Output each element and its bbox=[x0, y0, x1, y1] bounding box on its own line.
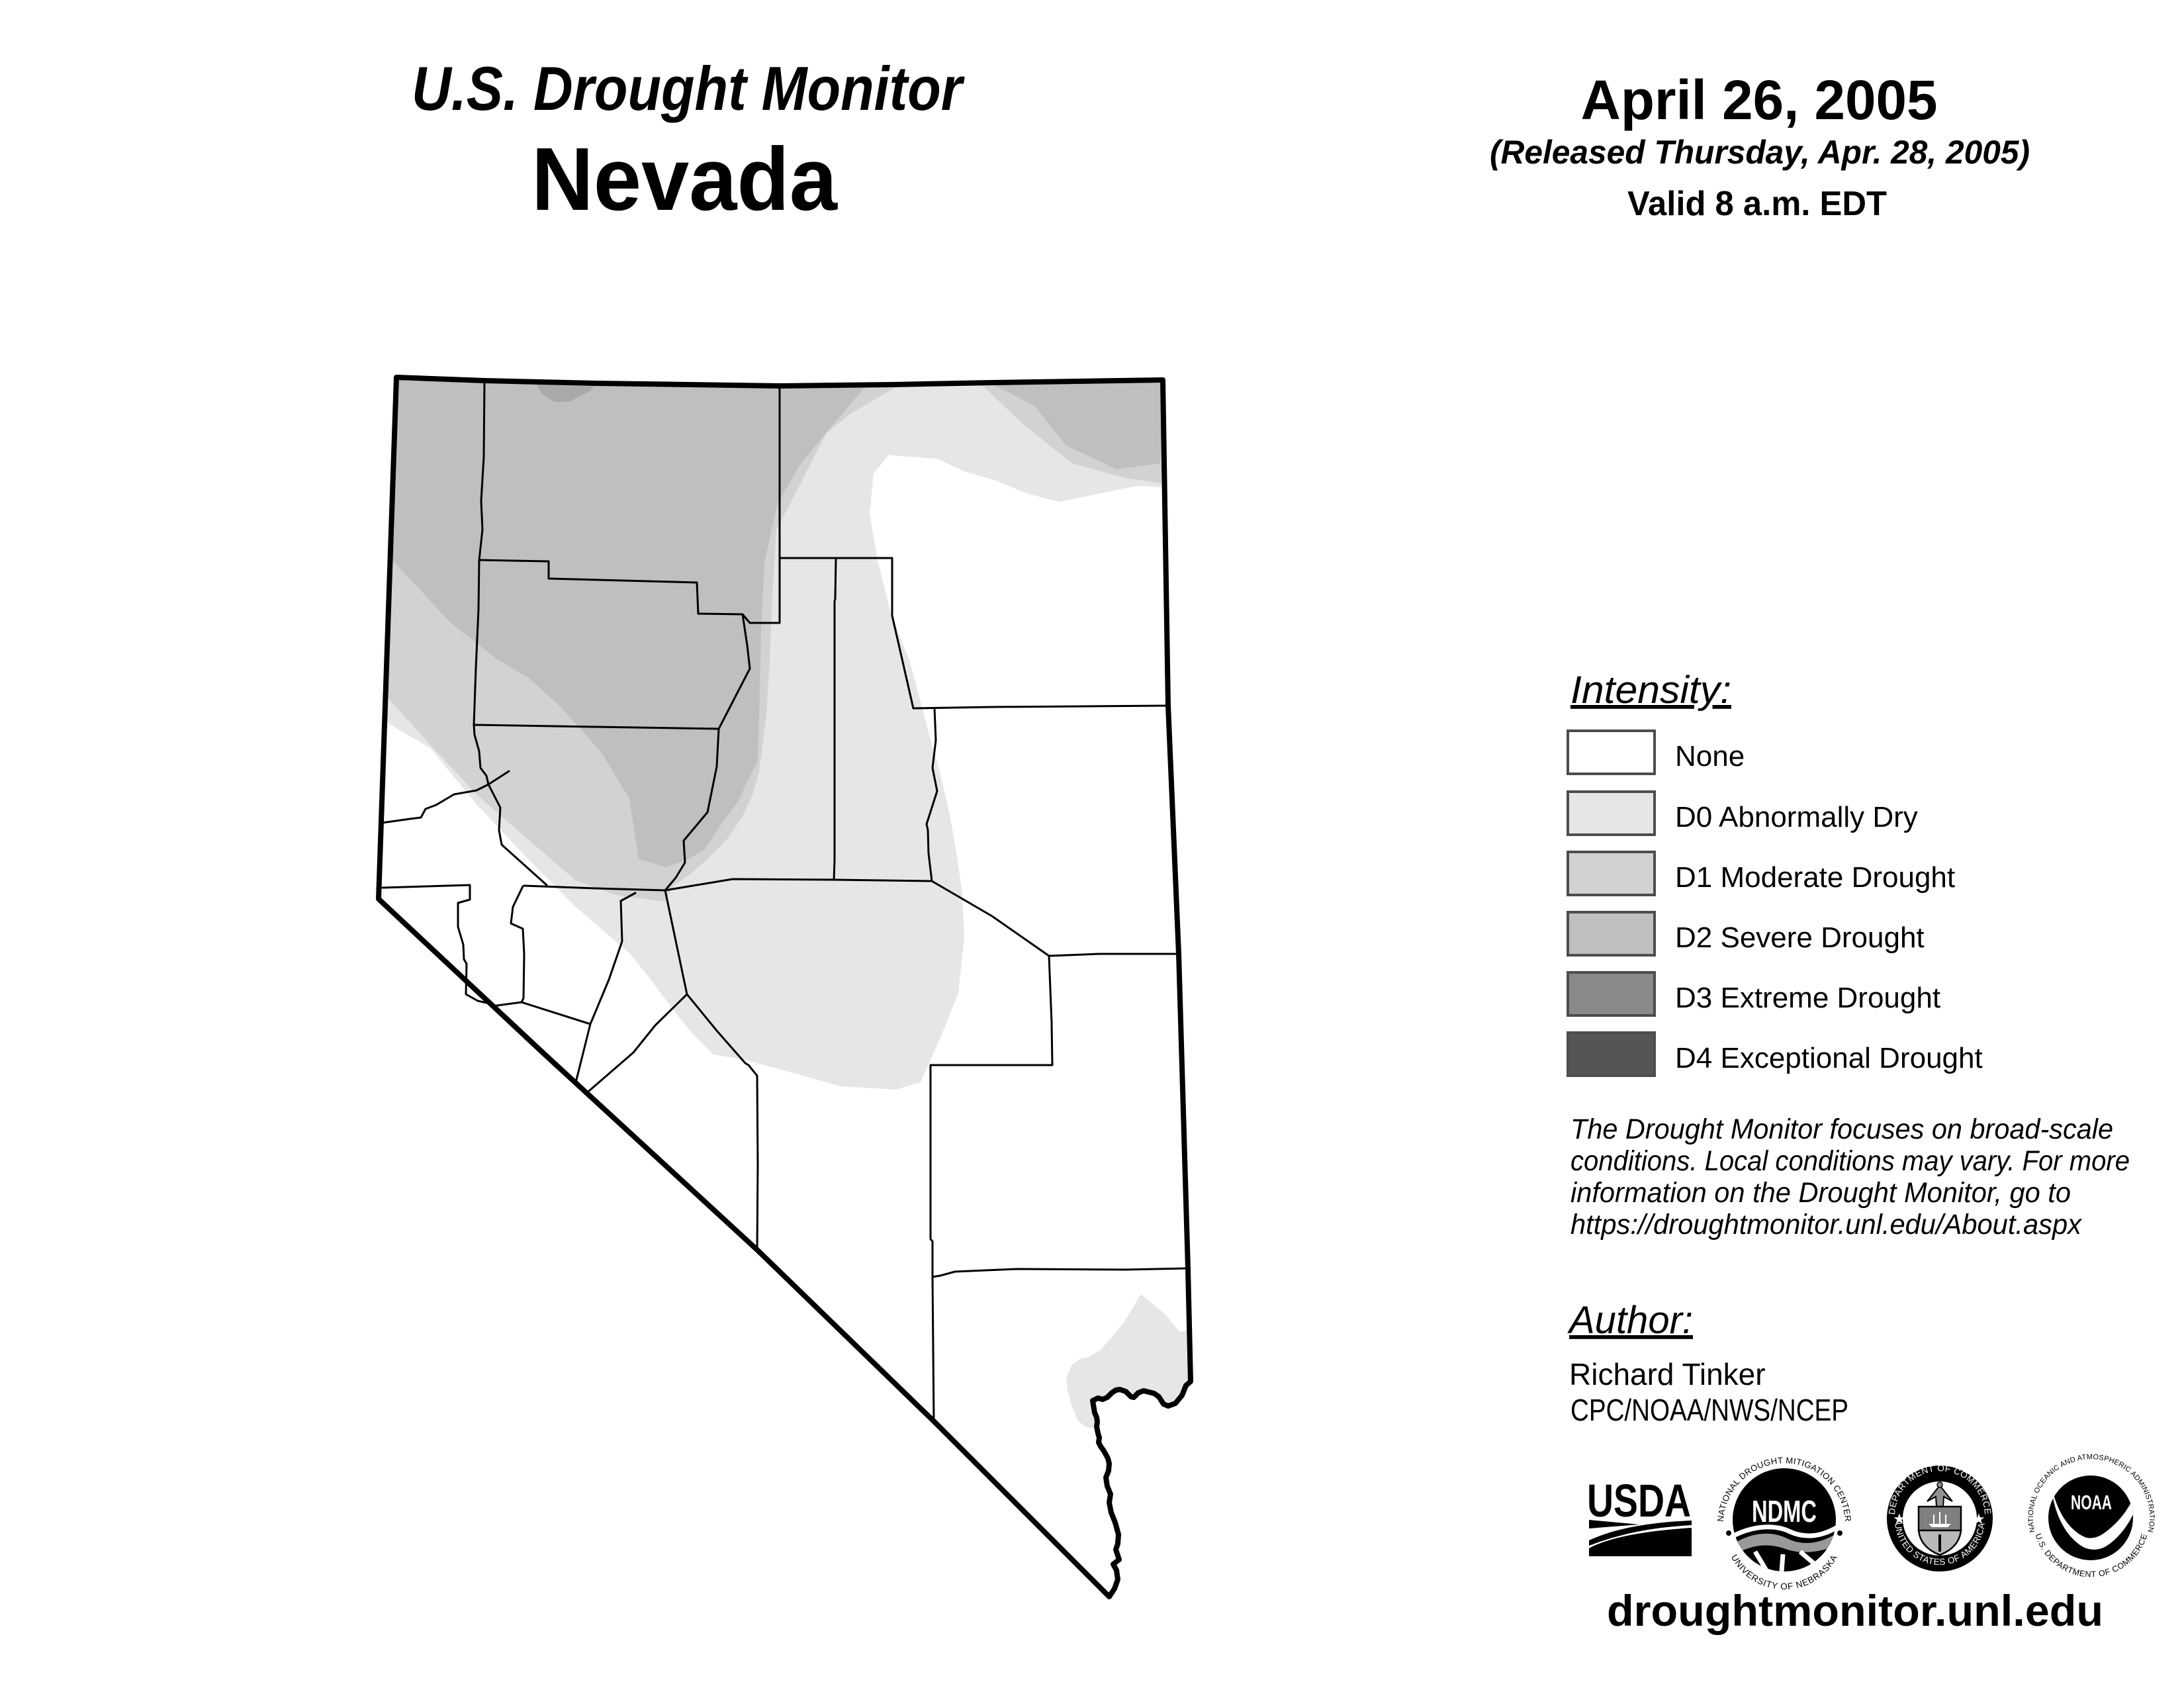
svg-text:https://droughtmonitor.unl.edu: https://droughtmonitor.unl.edu/About.asp… bbox=[1570, 1209, 2082, 1241]
svg-text:★: ★ bbox=[1972, 1511, 1985, 1527]
svg-text:None: None bbox=[1675, 740, 1745, 773]
svg-text:Nevada: Nevada bbox=[531, 129, 838, 229]
svg-text:NDMC: NDMC bbox=[1752, 1494, 1817, 1528]
svg-text:Valid 8 a.m. EDT: Valid 8 a.m. EDT bbox=[1627, 185, 1887, 223]
svg-text:USDA: USDA bbox=[1587, 1475, 1691, 1526]
svg-text:(Released Thursday, Apr. 28, 2: (Released Thursday, Apr. 28, 2005) bbox=[1490, 134, 2030, 171]
svg-text:D1 Moderate Drought: D1 Moderate Drought bbox=[1675, 861, 1955, 894]
svg-text:CPC/NOAA/NWS/NCEP: CPC/NOAA/NWS/NCEP bbox=[1570, 1393, 1848, 1427]
svg-text:conditions. Local conditions m: conditions. Local conditions may vary. F… bbox=[1570, 1145, 2130, 1177]
svg-text:D3 Extreme Drought: D3 Extreme Drought bbox=[1675, 982, 1940, 1014]
svg-text:Intensity:: Intensity: bbox=[1570, 669, 1731, 712]
svg-text:D2 Severe Drought: D2 Severe Drought bbox=[1675, 921, 1925, 954]
svg-text:D0 Abnormally Dry: D0 Abnormally Dry bbox=[1675, 801, 1918, 833]
svg-text:NOAA: NOAA bbox=[2071, 1491, 2112, 1514]
svg-text:U.S. Drought Monitor: U.S. Drought Monitor bbox=[412, 54, 965, 123]
svg-text:Richard Tinker: Richard Tinker bbox=[1569, 1357, 1766, 1391]
svg-text:information on the Drought Mon: information on the Drought Monitor, go t… bbox=[1570, 1177, 2071, 1209]
svg-text:April 26, 2005: April 26, 2005 bbox=[1581, 69, 1938, 131]
svg-text:★: ★ bbox=[1893, 1511, 1906, 1527]
svg-text:droughtmonitor.unl.edu: droughtmonitor.unl.edu bbox=[1607, 1586, 2103, 1635]
svg-text:D4 Exceptional Drought: D4 Exceptional Drought bbox=[1675, 1042, 1983, 1074]
svg-text:The Drought Monitor focuses on: The Drought Monitor focuses on broad-sca… bbox=[1570, 1113, 2113, 1145]
svg-text:Author:: Author: bbox=[1567, 1299, 1693, 1342]
